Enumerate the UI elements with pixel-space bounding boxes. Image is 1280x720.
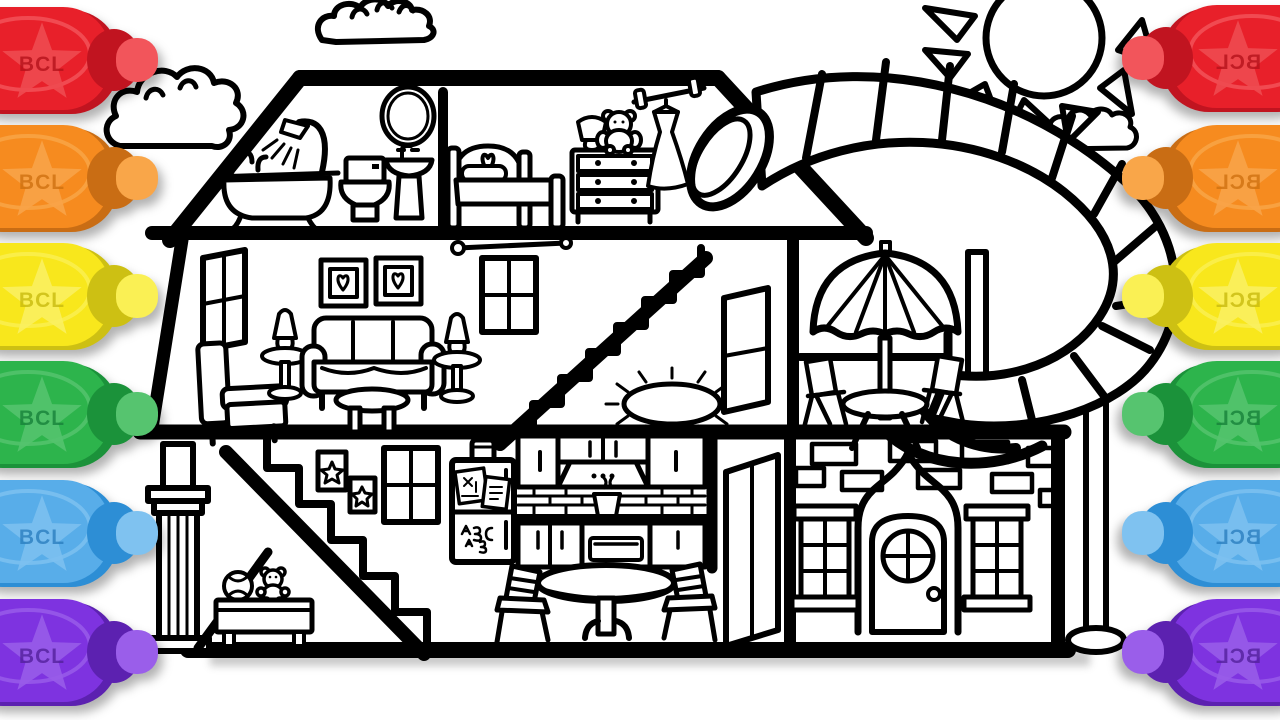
blanket (456, 180, 562, 204)
kitchen-table (538, 565, 674, 638)
marker-pens-left (0, 7, 158, 706)
window (482, 258, 536, 332)
marker-red-left (0, 7, 158, 114)
side-window (203, 250, 245, 350)
marker-blue-right (1122, 480, 1280, 587)
marker-purple-right (1122, 599, 1280, 706)
cloud-top-icon (318, 0, 434, 42)
framed-picture (376, 258, 421, 304)
dress (648, 112, 688, 189)
stove (582, 523, 650, 567)
hall (606, 288, 768, 440)
marker-green-right (1122, 361, 1280, 468)
facade-window (964, 506, 1030, 610)
patio-furniture (804, 242, 964, 448)
front-door (858, 452, 958, 632)
fridge (452, 440, 514, 562)
chair (664, 564, 715, 640)
bathroom (214, 87, 434, 231)
playroom-wall-decor (318, 448, 438, 522)
bathtub (214, 152, 338, 231)
toy-corner (216, 568, 312, 646)
column (147, 444, 209, 651)
patio-chair (804, 358, 846, 428)
scene-svg: BCL (0, 0, 1280, 720)
window (384, 448, 438, 522)
mirror (382, 87, 434, 145)
marker-yellow-left (0, 243, 158, 350)
toilet (341, 158, 389, 220)
living-room (198, 238, 571, 444)
slide-support-pole (1086, 388, 1106, 638)
shower (263, 120, 325, 172)
teddy-bear (597, 111, 641, 154)
toy-bench (216, 600, 312, 646)
sink (382, 87, 434, 218)
marker-orange-left (0, 125, 158, 232)
coloring-page: BCL (0, 0, 1280, 720)
marker-green-left (0, 361, 158, 468)
pot (594, 494, 620, 516)
chair (497, 566, 548, 642)
doorknob (928, 588, 940, 600)
marker-blue-left (0, 480, 158, 587)
kitchen-door (726, 455, 778, 646)
curtain-rod (452, 238, 571, 254)
pole-base (1068, 628, 1124, 652)
dresser (572, 150, 658, 222)
facade-window (792, 506, 858, 610)
bed (448, 146, 563, 228)
marker-purple-left (0, 599, 158, 706)
left-wall (152, 240, 182, 428)
brick-facade (792, 441, 1058, 632)
bedroom (448, 77, 704, 228)
interior-door (724, 288, 768, 412)
framed-picture (321, 260, 366, 306)
marker-red-right (1122, 5, 1280, 112)
kitchen (452, 436, 778, 646)
